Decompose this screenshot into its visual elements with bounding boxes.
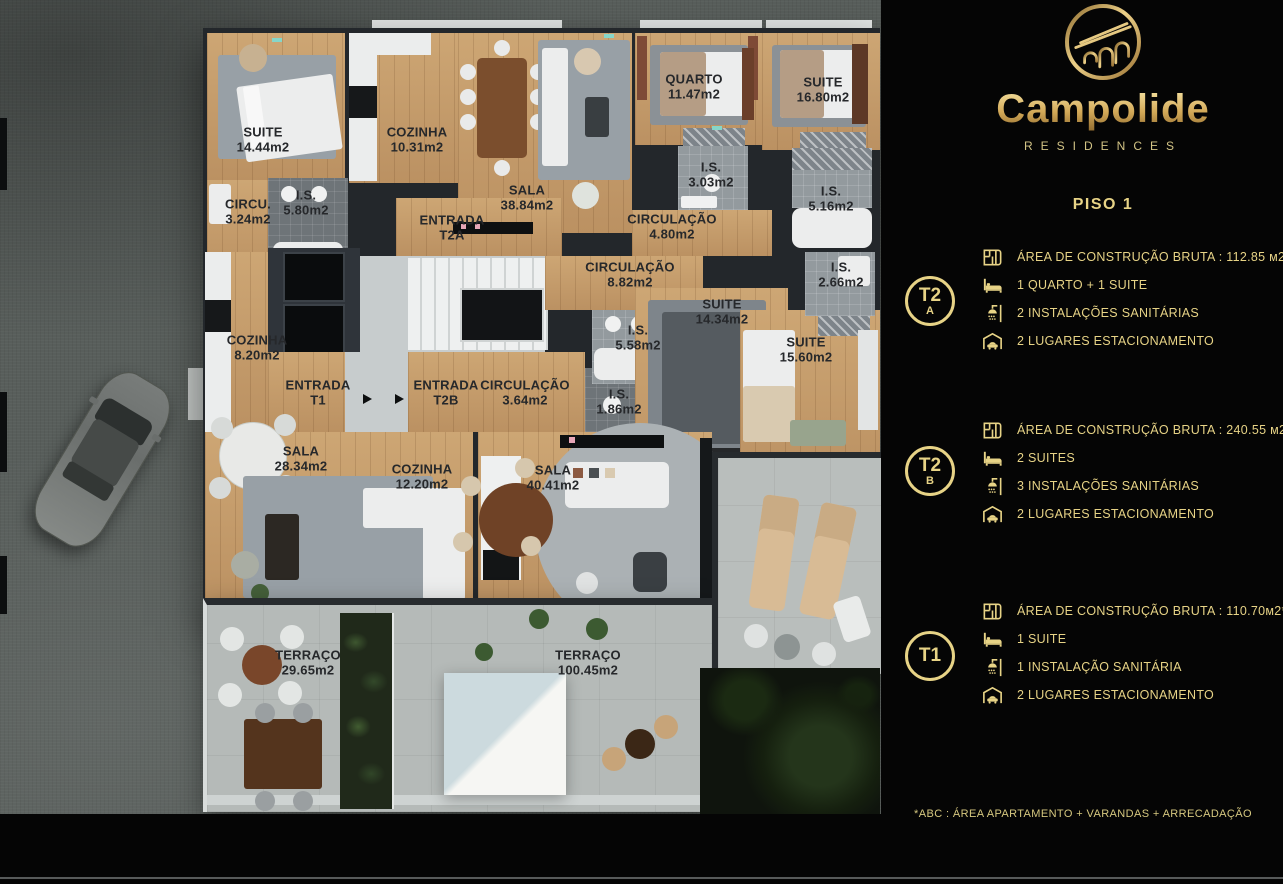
- plant: [586, 618, 608, 640]
- armchair: [572, 182, 599, 209]
- feature-row: 2 SUITES: [981, 444, 1277, 472]
- chair: [453, 532, 473, 552]
- washer: [209, 184, 231, 224]
- chair: [274, 414, 296, 436]
- sink: [281, 186, 297, 202]
- room-circ-480: [632, 210, 772, 256]
- decor: [475, 224, 480, 229]
- decor: [461, 224, 466, 229]
- badge-letter: B: [926, 476, 934, 487]
- outdoor-chair: [293, 791, 313, 811]
- bed-duvet: [743, 386, 795, 442]
- unit-t2a: T2 A ÁREA DE CONSTRUÇÃO BRUTA : 112.85 м…: [905, 243, 1277, 359]
- sink: [605, 316, 621, 332]
- stair-rail: [462, 290, 542, 340]
- chair: [521, 536, 541, 556]
- feature-row: 2 LUGARES ESTACIONAMENTO: [981, 681, 1277, 709]
- shower: [838, 256, 870, 286]
- curb-strip: [0, 118, 7, 190]
- footnote: *ABC : ÁREA APARTAMENTO + VARANDAS + ARR…: [903, 808, 1263, 820]
- unit-t1: T1 ÁREA DE CONSTRUÇÃO BRUTA : 110.70м2* …: [905, 597, 1277, 713]
- sun-lounger: [748, 494, 800, 612]
- bed-duvet: [660, 52, 706, 116]
- chair: [211, 417, 233, 439]
- unit-badge-t2a: T2 A: [905, 276, 955, 326]
- feature-text: ÁREA DE CONSTRUÇÃO BRUTA : 112.85 м2*: [1017, 250, 1283, 264]
- feature-row: ÁREA DE CONSTRUÇÃO BRUTA : 240.55 м2*: [981, 416, 1277, 444]
- toilet: [703, 174, 721, 192]
- outdoor-chair: [278, 681, 302, 705]
- tv-wall: [700, 438, 712, 608]
- outdoor-chair: [255, 703, 275, 723]
- feature-text: 1 SUITE: [1017, 632, 1066, 646]
- closet: [637, 36, 647, 100]
- headboard: [852, 44, 868, 124]
- plant: [529, 609, 549, 629]
- headboard: [742, 48, 754, 120]
- unit-badge-t1: T1: [905, 631, 955, 681]
- bed-icon: [981, 274, 1004, 297]
- feature-row: 2 LUGARES ESTACIONAMENTO: [981, 327, 1277, 355]
- chair: [209, 477, 231, 499]
- area-plan-icon: [981, 419, 1004, 442]
- window-tag: [604, 34, 614, 38]
- unit-features: ÁREA DE CONSTRUÇÃO BRUTA : 240.55 м2* 2 …: [981, 416, 1277, 528]
- armchair: [239, 44, 267, 72]
- garage-icon: [981, 503, 1004, 526]
- toilet: [603, 396, 621, 414]
- bed-icon: [981, 628, 1004, 651]
- floor-plan-render: SUITE14.44m2COZINHA10.31m2SALA38.84m2QUA…: [0, 0, 881, 884]
- area-plan-icon: [981, 600, 1004, 623]
- desk: [858, 330, 878, 430]
- room-entrada-t2b: [408, 352, 493, 432]
- feature-row: 3 INSTALAÇÕES SANITÁRIAS: [981, 472, 1277, 500]
- coffee-table: [265, 514, 299, 580]
- feature-row: ÁREA DE CONSTRUÇÃO BRUTA : 112.85 м2*: [981, 243, 1277, 271]
- vestibule: [345, 352, 408, 432]
- room-is-516: [792, 170, 872, 208]
- outdoor-chair: [744, 624, 768, 648]
- feature-row: 1 SUITE: [981, 625, 1277, 653]
- feature-text: 2 INSTALAÇÕES SANITÁRIAS: [1017, 306, 1199, 320]
- badge-letter: A: [926, 306, 934, 317]
- chair: [494, 40, 510, 56]
- brand-tagline: RESIDENCES: [923, 139, 1283, 153]
- planter: [340, 613, 394, 809]
- wardrobe: [683, 128, 745, 148]
- feature-text: 3 INSTALAÇÕES SANITÁRIAS: [1017, 479, 1199, 493]
- wardrobe: [792, 148, 872, 170]
- outdoor-chair: [218, 683, 242, 707]
- stove: [349, 86, 377, 118]
- unit-features: ÁREA DE CONSTRUÇÃO BRUTA : 112.85 м2* 1 …: [981, 243, 1277, 355]
- marketing-sheet: SUITE14.44m2COZINHA10.31m2SALA38.84m2QUA…: [0, 0, 1283, 884]
- shower-icon: [981, 475, 1004, 498]
- curb-strip: [0, 556, 7, 614]
- unit-badge-t2b: T2 B: [905, 446, 955, 496]
- media-console: [560, 435, 664, 448]
- window-tag: [272, 38, 282, 42]
- feature-text: 2 LUGARES ESTACIONAMENTO: [1017, 688, 1214, 702]
- pillow: [589, 468, 599, 478]
- badge-type: T2: [919, 286, 941, 305]
- garden: [700, 668, 880, 815]
- outdoor-chair: [280, 625, 304, 649]
- bistro-table: [625, 729, 655, 759]
- stove: [205, 300, 231, 332]
- outdoor-chair: [812, 642, 836, 666]
- feature-row: 1 QUARTO + 1 SUITE: [981, 271, 1277, 299]
- bed-duvet: [780, 50, 824, 118]
- badge-type: T1: [919, 646, 941, 665]
- outdoor-chair: [832, 595, 872, 644]
- armchair: [231, 551, 259, 579]
- outdoor-chair: [255, 791, 275, 811]
- kitchen-counter: [205, 252, 231, 432]
- vanity: [681, 196, 717, 208]
- badge-type: T2: [919, 456, 941, 475]
- chair: [461, 476, 481, 496]
- feature-text: ÁREA DE CONSTRUÇÃO BRUTA : 240.55 м2*: [1017, 423, 1283, 437]
- door-arrow: [395, 394, 404, 404]
- bottom-band: [0, 814, 881, 884]
- outdoor-table: [774, 634, 800, 660]
- info-panel: Campolide RESIDENCES PISO 1 T2 A ÁREA DE…: [881, 0, 1283, 884]
- bathtub: [792, 208, 872, 248]
- outdoor-dining-table: [244, 719, 322, 789]
- rug: [790, 420, 846, 446]
- patio-right: [712, 452, 886, 674]
- feature-text: 2 SUITES: [1017, 451, 1075, 465]
- brand-block: Campolide RESIDENCES: [923, 0, 1283, 153]
- floor-title: PISO 1: [923, 196, 1283, 214]
- elevator-cab: [283, 304, 345, 354]
- dining-table: [477, 58, 527, 158]
- plant: [475, 643, 493, 661]
- chair: [494, 160, 510, 176]
- aqueduct-logo-icon: [1063, 2, 1143, 82]
- terrace-main: [203, 598, 716, 812]
- chair: [515, 458, 535, 478]
- unit-t2b: T2 B ÁREA DE CONSTRUÇÃO BRUTA : 240.55 м…: [905, 416, 1277, 532]
- room-circ-364: [493, 352, 585, 432]
- shower-icon: [981, 656, 1004, 679]
- side-table: [576, 572, 598, 594]
- page-edge-line: [0, 877, 1283, 879]
- brand-name: Campolide: [923, 87, 1283, 132]
- chair: [460, 89, 476, 105]
- unit-features: ÁREA DE CONSTRUÇÃO BRUTA : 110.70м2* 1 S…: [981, 597, 1277, 709]
- entrance-step: [188, 368, 203, 420]
- dining-table-round: [479, 483, 553, 557]
- area-plan-icon: [981, 246, 1004, 269]
- elevator-cab: [283, 252, 345, 302]
- chair: [460, 64, 476, 80]
- feature-text: 1 QUARTO + 1 SUITE: [1017, 278, 1147, 292]
- bed-icon: [981, 447, 1004, 470]
- outdoor-chair: [602, 747, 626, 771]
- terrace-edge: [207, 795, 716, 805]
- feature-row: ÁREA DE CONSTRUÇÃO BRUTA : 110.70м2*: [981, 597, 1277, 625]
- sink: [311, 186, 327, 202]
- coffee-table: [585, 97, 609, 137]
- feature-text: 2 LUGARES ESTACIONAMENTO: [1017, 507, 1214, 521]
- pergola: [444, 673, 566, 795]
- garage-icon: [981, 330, 1004, 353]
- curb-strip: [0, 392, 7, 472]
- decor: [569, 437, 575, 443]
- feature-text: ÁREA DE CONSTRUÇÃO BRUTA : 110.70м2*: [1017, 604, 1283, 618]
- door-arrow: [363, 394, 372, 404]
- pillow: [605, 468, 615, 478]
- feature-row: 1 INSTALAÇÃO SANITÁRIA: [981, 653, 1277, 681]
- feature-text: 2 LUGARES ESTACIONAMENTO: [1017, 334, 1214, 348]
- feature-row: 2 INSTALAÇÕES SANITÁRIAS: [981, 299, 1277, 327]
- sofa: [542, 48, 568, 166]
- outdoor-chair: [654, 715, 678, 739]
- outdoor-chair: [220, 627, 244, 651]
- armchair: [574, 48, 601, 75]
- feature-row: 2 LUGARES ESTACIONAMENTO: [981, 500, 1277, 528]
- shower-icon: [981, 302, 1004, 325]
- armchair: [633, 552, 667, 592]
- outdoor-table: [242, 645, 282, 685]
- garage-icon: [981, 684, 1004, 707]
- feature-text: 1 INSTALAÇÃO SANITÁRIA: [1017, 660, 1182, 674]
- pillow: [573, 468, 583, 478]
- car: [25, 362, 179, 553]
- outdoor-chair: [293, 703, 313, 723]
- window-tag: [712, 126, 722, 130]
- chair: [460, 114, 476, 130]
